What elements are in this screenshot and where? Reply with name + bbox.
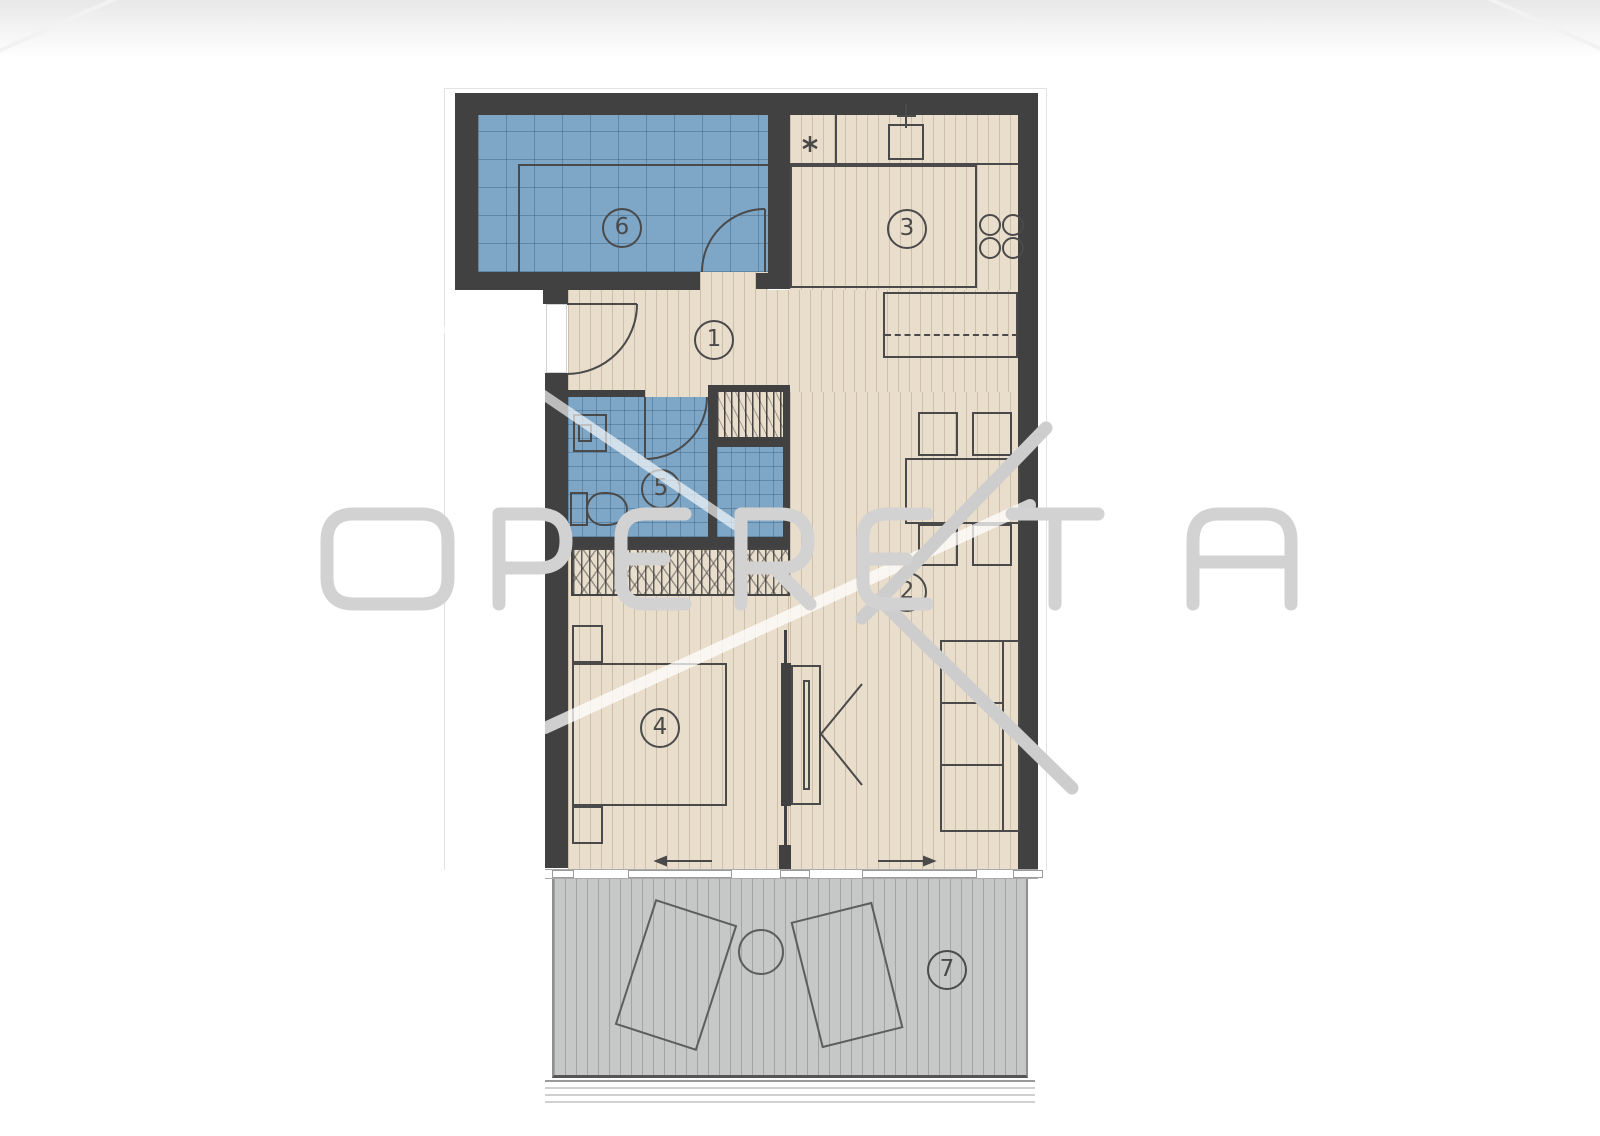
- floor-plan-page: 1 2 3 4 5 6 7: [0, 0, 1600, 1136]
- watermark-text: [327, 514, 1291, 604]
- watermark: [0, 0, 1600, 1136]
- watermark-swoosh: [448, 330, 1072, 788]
